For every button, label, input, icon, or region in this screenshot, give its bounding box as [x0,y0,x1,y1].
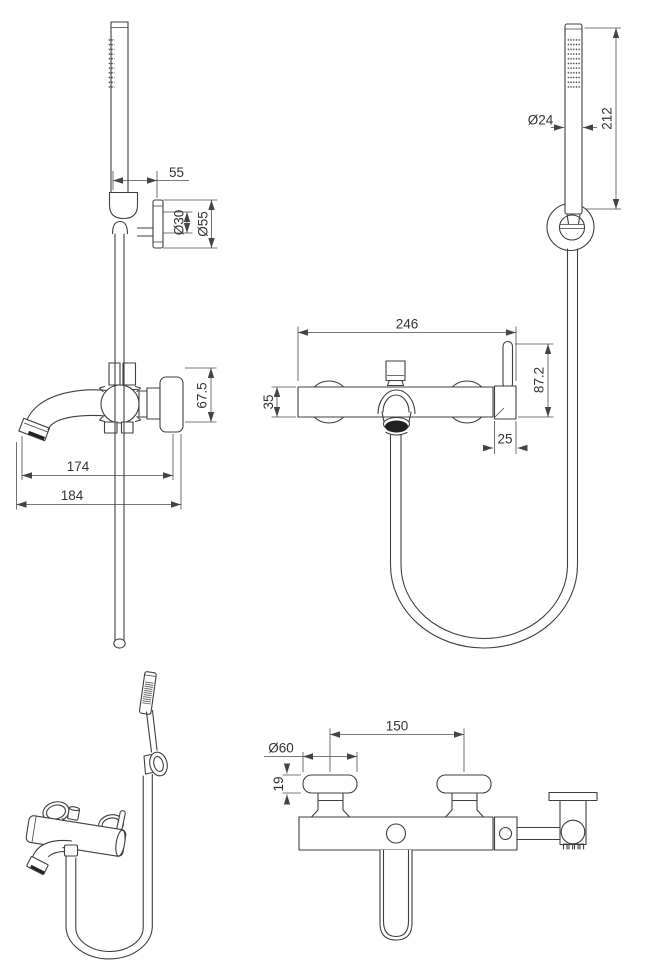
dim-25-label: 25 [497,432,512,447]
hose-side-lines [115,234,124,640]
dim-150-label: 150 [386,719,409,734]
inlet-stem-right [446,793,484,817]
dim-55-label: 55 [169,165,184,180]
body-cylinder-side [147,388,160,419]
hose-port-side [122,422,134,433]
hose-ball-joint [113,222,128,235]
inlet-flange-right-top [437,775,491,793]
wand-grip-cup [110,193,138,219]
diverter-knob-persp [67,806,79,820]
dim-246-label: 246 [396,317,419,332]
dim-35-label: 35 [261,394,276,409]
spout-outlet-lip [386,433,407,436]
lever-pivot-top [500,828,512,840]
dim-174-label: 174 [67,459,90,474]
dim-87-label: 87.2 [532,367,547,393]
hose-outer-edge [391,249,578,648]
diverter-knob-base [388,381,404,386]
dim-675-label: 67.5 [195,382,210,408]
diverter-knob [386,361,405,381]
spray-face [567,36,581,89]
hose-inner-edge [401,249,568,639]
spout-top-outer [380,850,412,940]
hose-nut-persp [65,845,78,856]
hand-shower-front-view: Ø24 212 [528,24,621,251]
shower-wand-persp [139,671,156,714]
dim-150-extension-lines [330,729,464,773]
dim-246-extension-lines [298,327,516,382]
hose-persp-outer [66,775,152,959]
inlet-flange-left-top [303,775,357,793]
mixer-top-view: 150 Ø60 19 [264,719,597,941]
dim-d60-label: Ø60 [268,741,294,756]
mixer-lever [503,342,513,389]
holder-ring-inner [560,215,585,240]
hose-side-bend-end [114,639,125,648]
wand-grip-top [561,820,585,844]
dim-212-label: 212 [600,107,615,130]
perspective-view [25,671,169,959]
wand-hose-link-persp [147,711,158,753]
technical-drawing-page: 55 Ø30 Ø55 Ø24 212 [0,0,649,970]
hand-shower-side-view: 55 Ø30 Ø55 [108,22,217,248]
wall-bracket-flange-side [153,200,163,248]
diverter-top-side [123,363,136,385]
shower-hose-side [114,234,125,648]
hose-persp-inner [76,776,143,951]
dim-d30-label: Ø30 [172,210,187,236]
valve-body-side [101,385,139,423]
body-collar-side [139,391,147,417]
technical-drawing-canvas: 55 Ø30 Ø55 Ø24 212 [0,0,649,970]
bracket-arm [138,228,154,236]
spray-nozzles-side [108,36,114,89]
dim-d55-label: Ø55 [196,211,211,237]
wall-flange-side [160,377,183,432]
inlet-stem-left [312,793,350,817]
mixer-side-view: 67.5 174 184 [17,363,217,510]
dim-184-extension-lines [17,434,182,510]
holder-plate-top [549,793,597,801]
dim-184-label: 184 [61,488,84,503]
mixer-front-view: 246 87.2 35 25 [261,317,554,455]
diverter-top [387,824,406,843]
shower-hose-front [391,249,578,648]
spout-inner-curve [48,415,107,429]
dim-19-label: 19 [271,776,286,791]
dim-d24-label: Ø24 [528,113,554,128]
spout-outlet-dark [385,421,408,433]
lever-arm-top [517,828,560,840]
